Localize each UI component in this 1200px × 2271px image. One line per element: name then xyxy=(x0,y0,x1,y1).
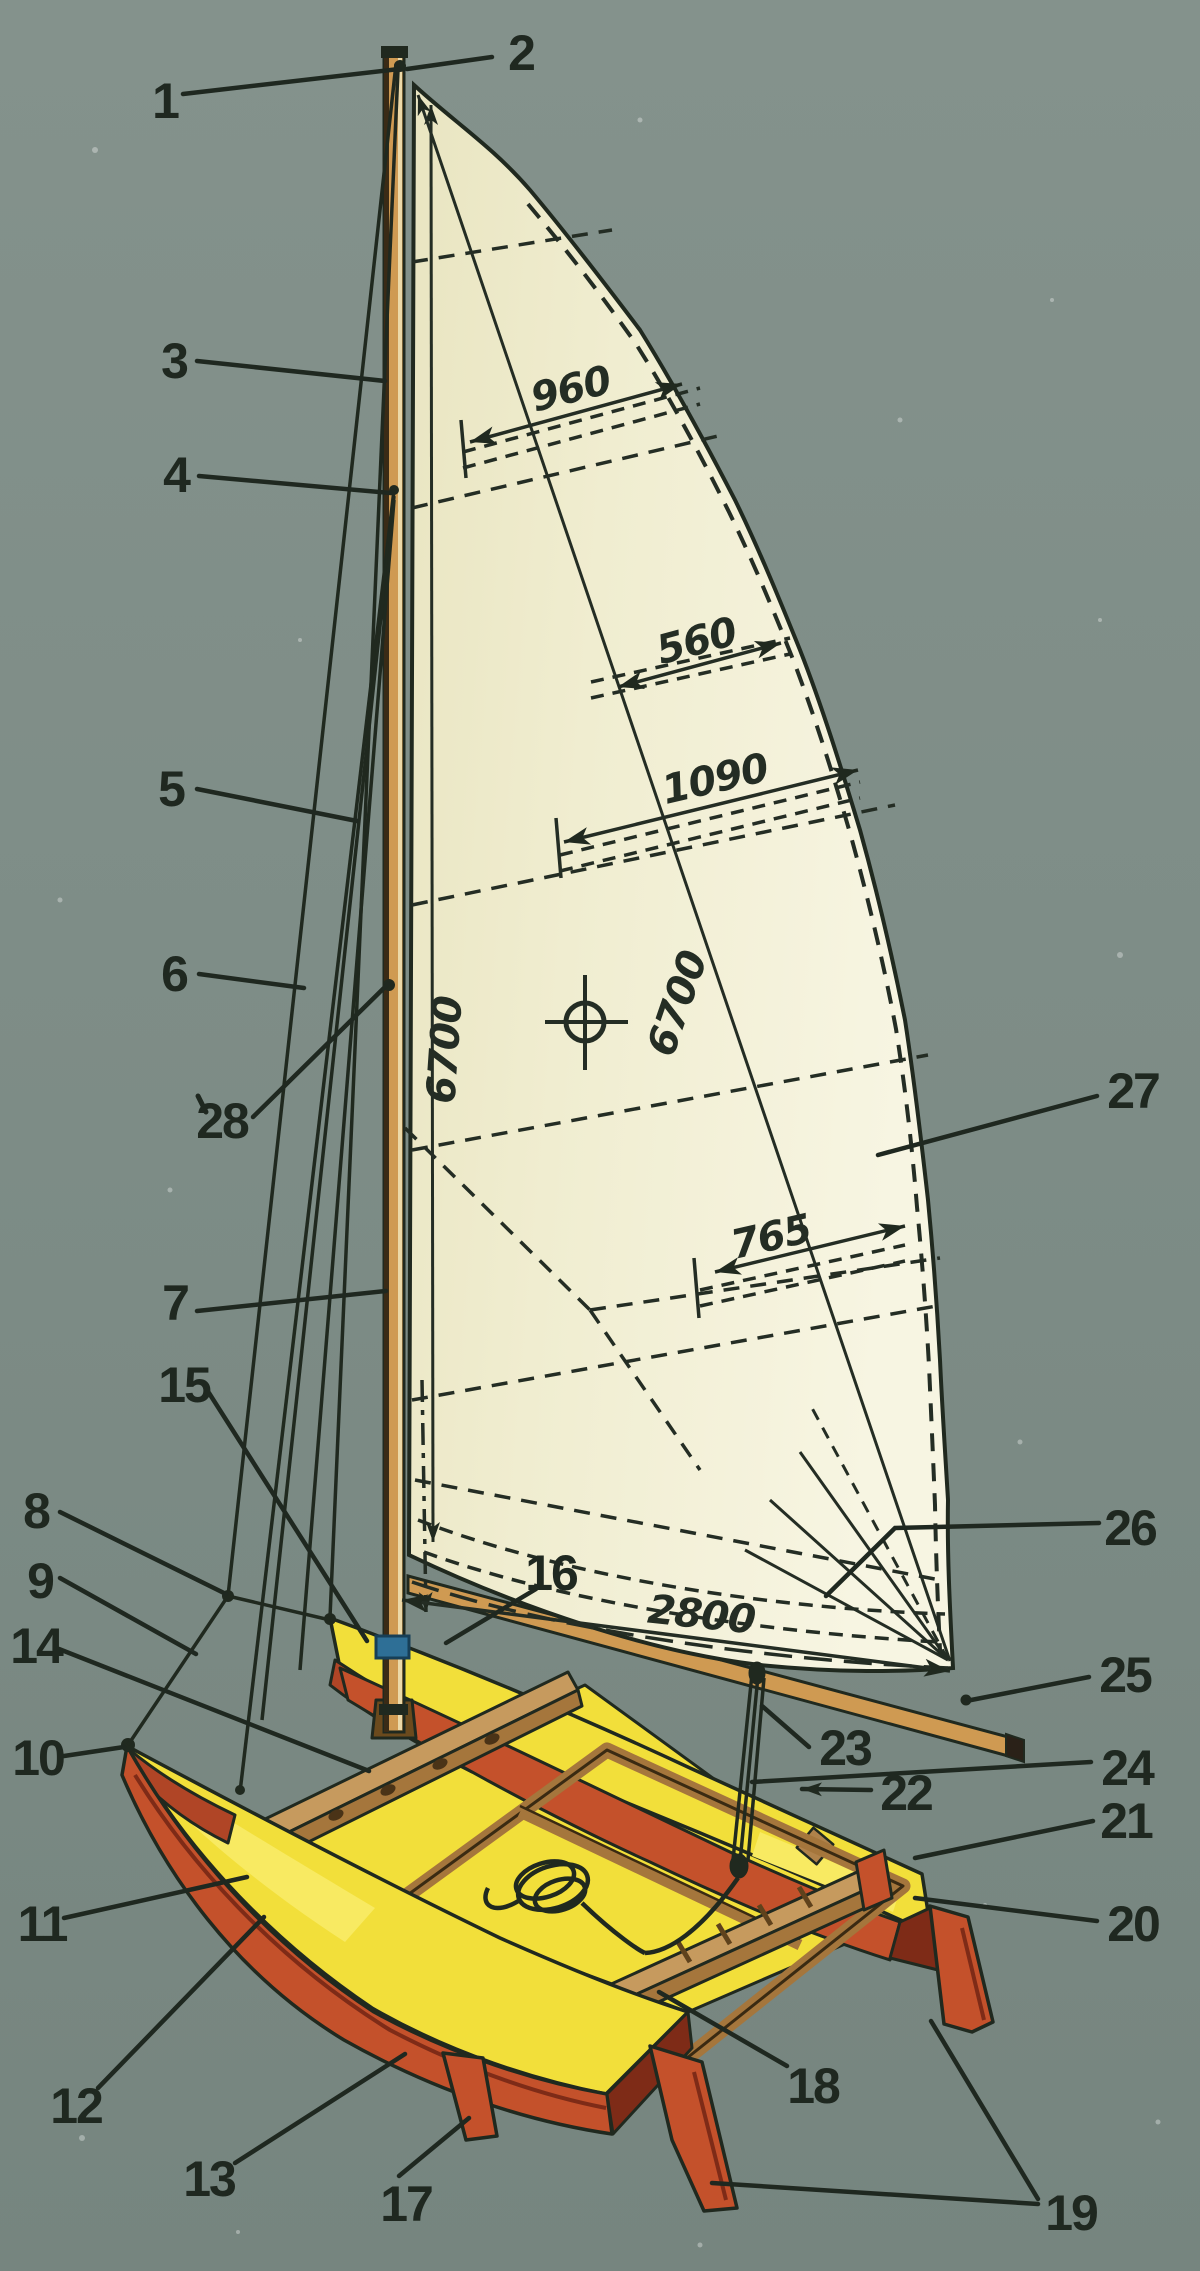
callout-15: 15 xyxy=(158,1357,211,1413)
callout-14: 14 xyxy=(10,1618,64,1674)
callout-11: 11 xyxy=(18,1896,68,1952)
callout-17: 17 xyxy=(380,2176,432,2232)
callout-8: 8 xyxy=(23,1483,50,1539)
upper-block xyxy=(749,1662,765,1684)
callout-18: 18 xyxy=(787,2058,840,2114)
callout-9: 9 xyxy=(27,1553,53,1609)
callout-6: 6 xyxy=(161,946,187,1002)
diagram-page: 960 560 1090 765 2800 6700 6700 xyxy=(0,0,1200,2271)
catamaran-diagram: 960 560 1090 765 2800 6700 6700 xyxy=(0,0,1200,2271)
callout-16: 16 xyxy=(525,1545,577,1601)
callout-12: 12 xyxy=(50,2078,102,2134)
lower-block xyxy=(730,1854,748,1878)
mast-foot-band xyxy=(379,1704,408,1715)
callout-1: 1 xyxy=(152,73,179,129)
callout-23: 23 xyxy=(819,1720,871,1776)
mast-step-band-blue xyxy=(376,1636,409,1658)
callout-24: 24 xyxy=(1101,1740,1155,1796)
callout-4: 4 xyxy=(163,447,191,503)
chainplate xyxy=(235,1785,245,1795)
callout-28: 28 xyxy=(196,1093,249,1149)
callout-27: 27 xyxy=(1107,1063,1159,1119)
rear-beam-red-tip xyxy=(856,1850,892,1910)
callout-25: 25 xyxy=(1099,1647,1152,1703)
callout-3: 3 xyxy=(161,333,187,389)
callout-19: 19 xyxy=(1045,2185,1097,2241)
callout-5: 5 xyxy=(158,761,185,817)
callout-21: 21 xyxy=(1100,1793,1153,1849)
luff-measure-line xyxy=(431,105,433,1542)
callout-20: 20 xyxy=(1107,1896,1159,1952)
dim-6700-luff: 6700 xyxy=(418,995,471,1105)
masthead-cap xyxy=(381,46,408,58)
callout-22: 22 xyxy=(880,1765,932,1821)
mast-highlight xyxy=(398,54,402,1730)
boom-end-cap xyxy=(1006,1734,1024,1762)
leader-22 xyxy=(802,1789,871,1790)
callout-13: 13 xyxy=(183,2151,235,2207)
callout-2: 2 xyxy=(508,25,534,81)
callout-7: 7 xyxy=(162,1275,188,1331)
callout-26: 26 xyxy=(1104,1500,1156,1556)
callout-10: 10 xyxy=(12,1730,64,1786)
